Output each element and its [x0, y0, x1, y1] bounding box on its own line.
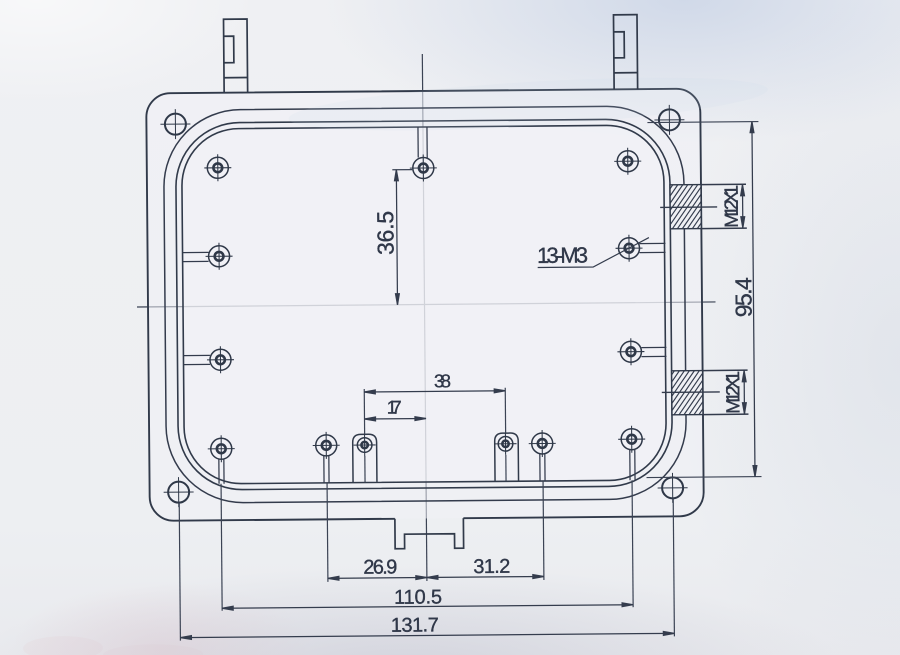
- svg-text:13-M3: 13-M3: [537, 243, 588, 268]
- svg-text:31.2: 31.2: [473, 556, 510, 578]
- svg-text:110.5: 110.5: [394, 586, 442, 608]
- svg-text:26.9: 26.9: [363, 556, 397, 578]
- svg-text:36.5: 36.5: [372, 211, 398, 255]
- svg-text:38: 38: [434, 370, 451, 391]
- svg-text:M12X1: M12X1: [723, 371, 744, 414]
- svg-text:95.4: 95.4: [730, 277, 756, 317]
- svg-text:M12X1: M12X1: [721, 185, 742, 228]
- svg-text:131.7: 131.7: [391, 614, 439, 636]
- svg-text:17: 17: [387, 397, 402, 418]
